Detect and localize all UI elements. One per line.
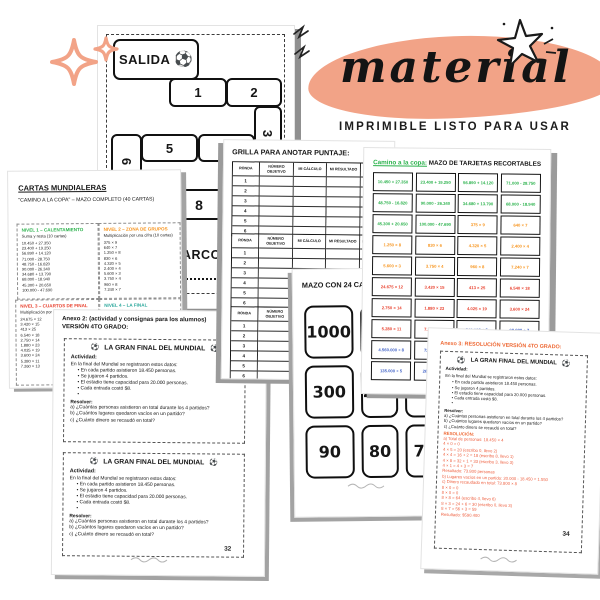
tarjeta-cell: 4.560.000 ÷ 8 <box>371 340 411 359</box>
tarjeta-cell: 90.000 - 26.340 <box>415 194 455 213</box>
sparkle-icon <box>40 30 126 118</box>
cartas-subtitle: "CAMINO A LA COPA" – MAZO COMPLETO (40 C… <box>18 196 154 203</box>
tarjetas-title-highlight: Camino a la copa: <box>373 159 427 167</box>
tarjeta-cell: 4.320 × 5 <box>457 236 497 255</box>
salida-label: SALIDA <box>119 52 170 67</box>
nivel-2-desc: Multiplicación por una cifra (10 cartas) <box>104 232 176 238</box>
nivel-2-box: NIVEL 2 – ZONA DE GRUPOS Multiplicación … <box>99 222 182 299</box>
tarjeta-cell: 4.025 × 19 <box>457 299 497 318</box>
tarjeta-cell: 48.750 - 16.820 <box>373 193 413 212</box>
tarjeta-cell: 2.750 × 14 <box>372 298 412 317</box>
operation-item: 7.240 × 7 <box>104 286 176 292</box>
page-number: 32 <box>224 546 231 553</box>
hero-subtitle: IMPRIMIBLE LISTO PARA USAR <box>339 121 571 133</box>
activity-box-title: LA GRAN FINAL DEL MUNDIAL <box>471 358 557 367</box>
board-cell-5: 5 <box>141 134 198 162</box>
soccer-ball-icon: ⚽ <box>209 458 218 466</box>
tarjeta-cell: 68.000 - 18.940 <box>500 194 540 213</box>
solution-page-34: Anexo 3: RESOLUCIÓN VERSIÓN 4TO GRADO: ⚽… <box>420 327 600 574</box>
soccer-ball-icon: ⚽ <box>210 344 219 352</box>
tarjeta-cell: 56.890 + 14.120 <box>458 173 498 192</box>
star-icon <box>494 14 558 76</box>
page-number: 34 <box>562 531 569 538</box>
soccer-ball-icon: ⚽ <box>91 343 100 351</box>
nivel-3-title: NIVEL 3 – CUARTOS DE FINAL <box>20 303 94 309</box>
tarjeta-cell: 100.000 - 47.690 <box>415 215 455 234</box>
actividad-label: Actividad: <box>70 468 238 475</box>
tarjeta-cell: 45.300 + 20.650 <box>372 214 412 233</box>
activity-box: ⚽ LA GRAN FINAL DEL MUNDIAL ⚽ Actividad:… <box>63 338 246 444</box>
tarjeta-cell: 6.540 × 18 <box>500 278 540 297</box>
tarjeta-cell: 960 × 8 <box>457 257 497 276</box>
nivel-1-desc: Suma y resta (10 cartas) <box>22 233 94 239</box>
anexo-3-title: Anexo 3: RESOLUCIÓN VERSIÓN 4TO GRADO: <box>440 341 561 351</box>
soccer-ball-icon: ⚽ <box>90 457 99 465</box>
signature-watermark <box>347 481 387 489</box>
tarjeta-cell: 3.600 × 24 <box>499 299 539 318</box>
squiggle-icon <box>291 24 319 74</box>
tarjetas-title: Camino a la copa: MAZO DE TARJETAS RECOR… <box>373 159 541 168</box>
activity-box-header: ⚽ LA GRAN FINAL DEL MUNDIAL ⚽ <box>71 343 239 352</box>
number-card: 80 <box>361 425 399 478</box>
tarjeta-cell: 830 × 6 <box>415 236 455 255</box>
anexo-2-title: Anexo 2: (actividad y consignas para los… <box>62 316 206 323</box>
actividad-label: Actividad: <box>71 354 239 361</box>
tarjeta-cell: 71.000 - 28.750 <box>501 173 541 192</box>
signature-watermark <box>130 555 170 563</box>
number-card: 1000 <box>304 305 353 359</box>
tarjeta-cell: 640 × 7 <box>500 215 540 234</box>
nivel-1-title: NIVEL 1 – CALENTAMIENTO <box>22 227 94 233</box>
tarjeta-cell: 1.880 × 23 <box>414 299 454 318</box>
signature-watermark <box>479 554 519 563</box>
tarjeta-cell: 7.240 × 7 <box>500 257 540 276</box>
grilla-title: GRILLA PARA ANOTAR PUNTAJE: <box>232 147 349 157</box>
tarjeta-cell: 24.675 × 12 <box>372 277 412 296</box>
activity-box-title: LA GRAN FINAL DEL MUNDIAL <box>103 458 204 466</box>
tarjeta-cell: 34.680 + 13.790 <box>458 194 498 213</box>
tarjeta-cell: 10.450 + 27.350 <box>373 172 413 191</box>
soccer-ball-icon: ⚽ <box>457 356 466 364</box>
tarjeta-cell: 1.250 × 8 <box>372 235 412 254</box>
tarjeta-cell: 3.750 × 4 <box>415 257 455 276</box>
nivel-2-title: NIVEL 2 – ZONA DE GRUPOS <box>104 226 176 232</box>
tarjeta-cell: 375 × 9 <box>458 215 498 234</box>
arco-label: ARCO <box>182 248 221 262</box>
tarjetas-title-rest: MAZO DE TARJETAS RECORTABLES <box>429 160 541 168</box>
tarjeta-cell: 2.400 × 4 <box>500 236 540 255</box>
number-card: 90 <box>305 425 354 479</box>
promo-collage: SALIDA ⚽ 1 2 3 5 4 6 8 ARCO CARTAS MUNDI… <box>0 0 600 600</box>
activity-box-header: ⚽ LA GRAN FINAL DEL MUNDIAL ⚽ <box>70 457 238 466</box>
tarjeta-cell: 3.420 × 15 <box>414 278 454 297</box>
activity-question: c) ¿Cuánto dinero se recaudó en total? <box>69 532 237 540</box>
solution-box: ⚽ LA GRAN FINAL DEL MUNDIAL ⚽ Actividad:… <box>434 351 588 554</box>
soccer-ball-icon: ⚽ <box>562 359 571 367</box>
tarjeta-cell: 135.000 ÷ 5 <box>371 361 411 380</box>
activity-bullet <box>77 392 238 399</box>
operation-item: 100.000 - 47.690 <box>22 287 94 293</box>
tarjeta-cell: 5.600 × 3 <box>372 256 412 275</box>
soccer-ball-icon: ⚽ <box>174 52 193 67</box>
activity-box: ⚽ LA GRAN FINAL DEL MUNDIAL ⚽ Actividad:… <box>62 452 245 558</box>
activity-question: c) ¿Cuánto dinero se recaudó en total? <box>70 418 238 426</box>
activity-box-title: LA GRAN FINAL DEL MUNDIAL <box>104 344 205 352</box>
tarjeta-cell: 5.280 × 11 <box>371 319 411 338</box>
board-cell-1: 1 <box>169 78 227 107</box>
tarjeta-cell: 23.400 + 19.250 <box>415 173 455 192</box>
nivel-1-box: NIVEL 1 – CALENTAMIENTO Suma y resta (10… <box>17 223 100 300</box>
nivel-4-title: NIVEL 4 – LA FINAL <box>104 302 176 308</box>
board-cell-2: 2 <box>226 78 282 107</box>
activity-bullet <box>76 506 237 513</box>
anexo-2-version: VERSIÓN 4TO GRADO: <box>62 324 128 331</box>
tarjeta-cell: 413 × 25 <box>457 278 497 297</box>
number-card: 300 <box>305 365 354 419</box>
cartas-title: CARTAS MUNDIALERAS <box>18 183 106 193</box>
